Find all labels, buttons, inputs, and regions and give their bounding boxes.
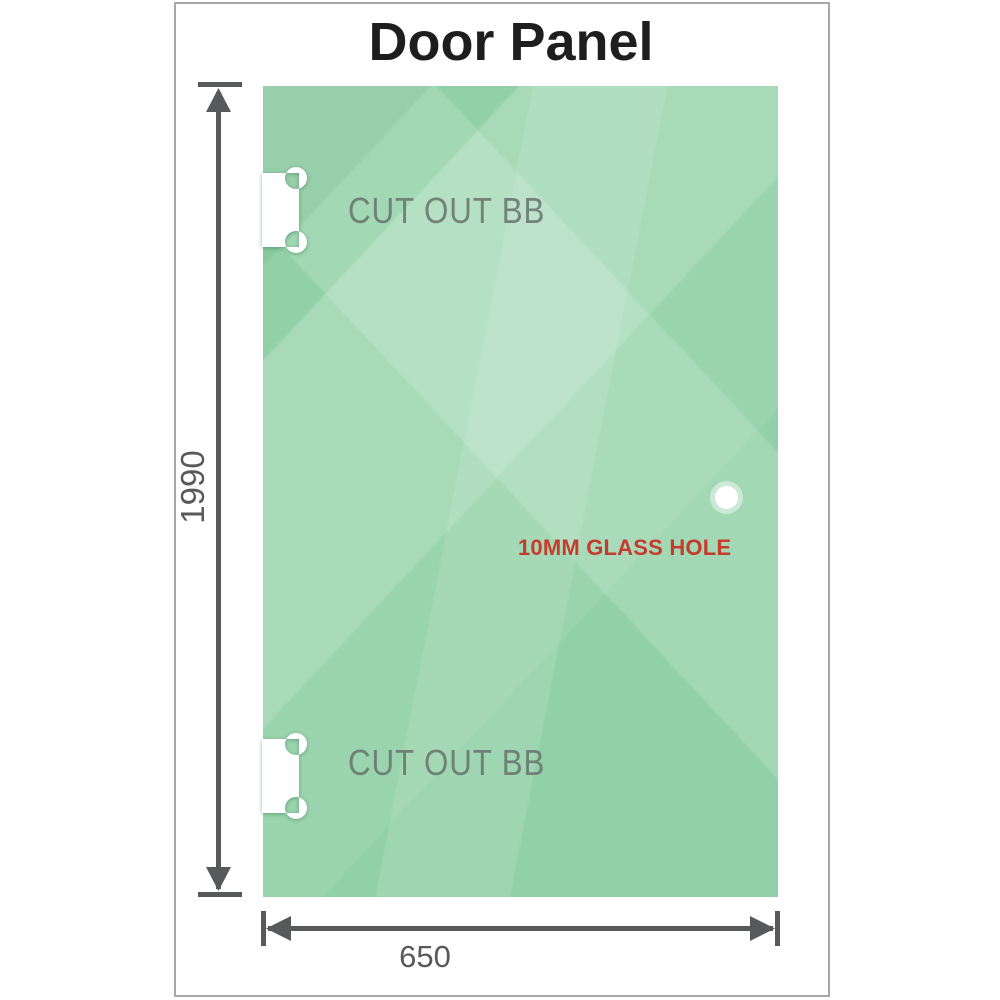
cutout-label-bottom: CUT OUT BB: [348, 746, 545, 780]
cutout-label-top: CUT OUT BB: [348, 194, 545, 228]
hinge-cutout-shape: [262, 733, 307, 819]
glass-panel: CUT OUT BB CUT OUT BB 10MM GLASS HOLE: [263, 86, 778, 897]
glass-hole-label: 10MM GLASS HOLE: [518, 536, 731, 560]
hinge-cutout-top-icon: [262, 166, 308, 254]
page-title: Door Panel: [368, 16, 653, 68]
door-panel-diagram: Door Panel CUT OUT BB CUT OUT BB 10MM GL…: [0, 0, 1000, 1000]
height-dimension-label: 1990: [174, 450, 212, 523]
hinge-cutout-bottom-icon: [262, 732, 308, 820]
glass-hole-icon: [715, 486, 738, 509]
width-dimension-label: 650: [399, 939, 451, 975]
hinge-cutout-shape: [262, 167, 307, 253]
